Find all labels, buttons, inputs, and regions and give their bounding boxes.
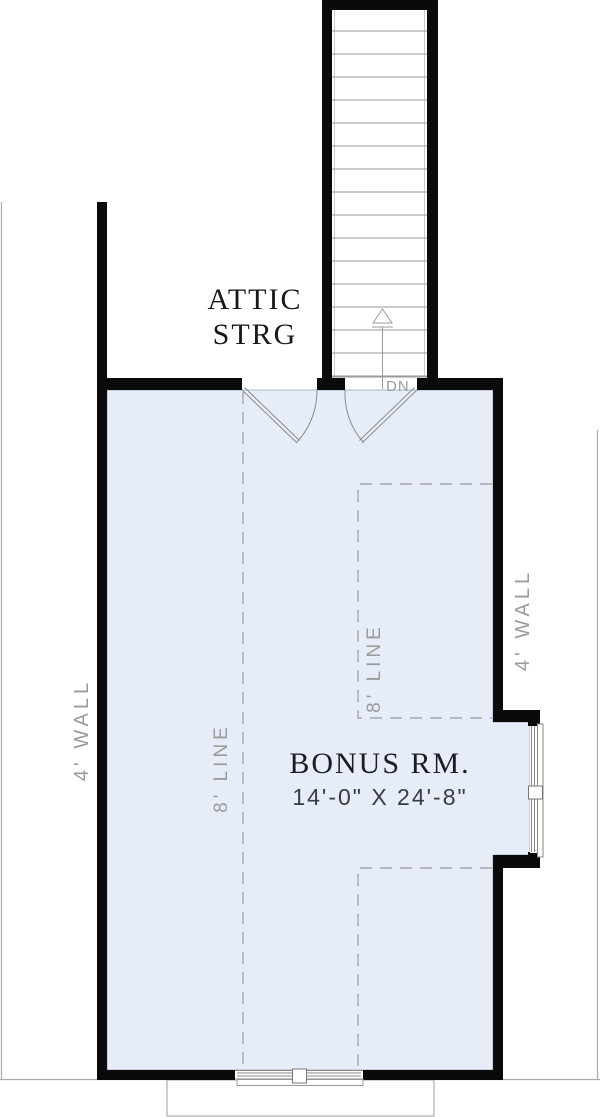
floor-plan-linework <box>0 0 600 1117</box>
bottom-window-mullion <box>293 1069 307 1083</box>
attic-storage-label-line2: STRG <box>180 317 330 352</box>
attic-storage-label-line1: ATTIC <box>180 282 330 317</box>
right-ceiling-line-label: 8' LINE <box>363 603 387 733</box>
room-title-block: BONUS RM. 14'-0" X 24'-8" <box>240 748 520 811</box>
room-name-label: BONUS RM. <box>240 748 520 780</box>
floor-plan: ATTIC STRG DN BONUS RM. 14'-0" X 24'-8" … <box>0 0 600 1117</box>
bottom-window <box>235 1069 363 1086</box>
bay-window <box>529 724 544 857</box>
left-ceiling-line-label: 8' LINE <box>210 703 234 833</box>
right-wall-height-label: 4' WALL <box>511 555 535 685</box>
attic-storage-label: ATTIC STRG <box>180 282 330 352</box>
stair-down-label: DN <box>386 378 410 395</box>
bonus-room-floor-fill <box>107 390 530 1070</box>
bay-window-mullion <box>529 786 543 799</box>
left-wall-height-label: 4' WALL <box>70 665 94 795</box>
staircase <box>332 10 427 389</box>
stair-treads <box>332 31 427 376</box>
room-dimensions-label: 14'-0" X 24'-8" <box>240 783 520 811</box>
